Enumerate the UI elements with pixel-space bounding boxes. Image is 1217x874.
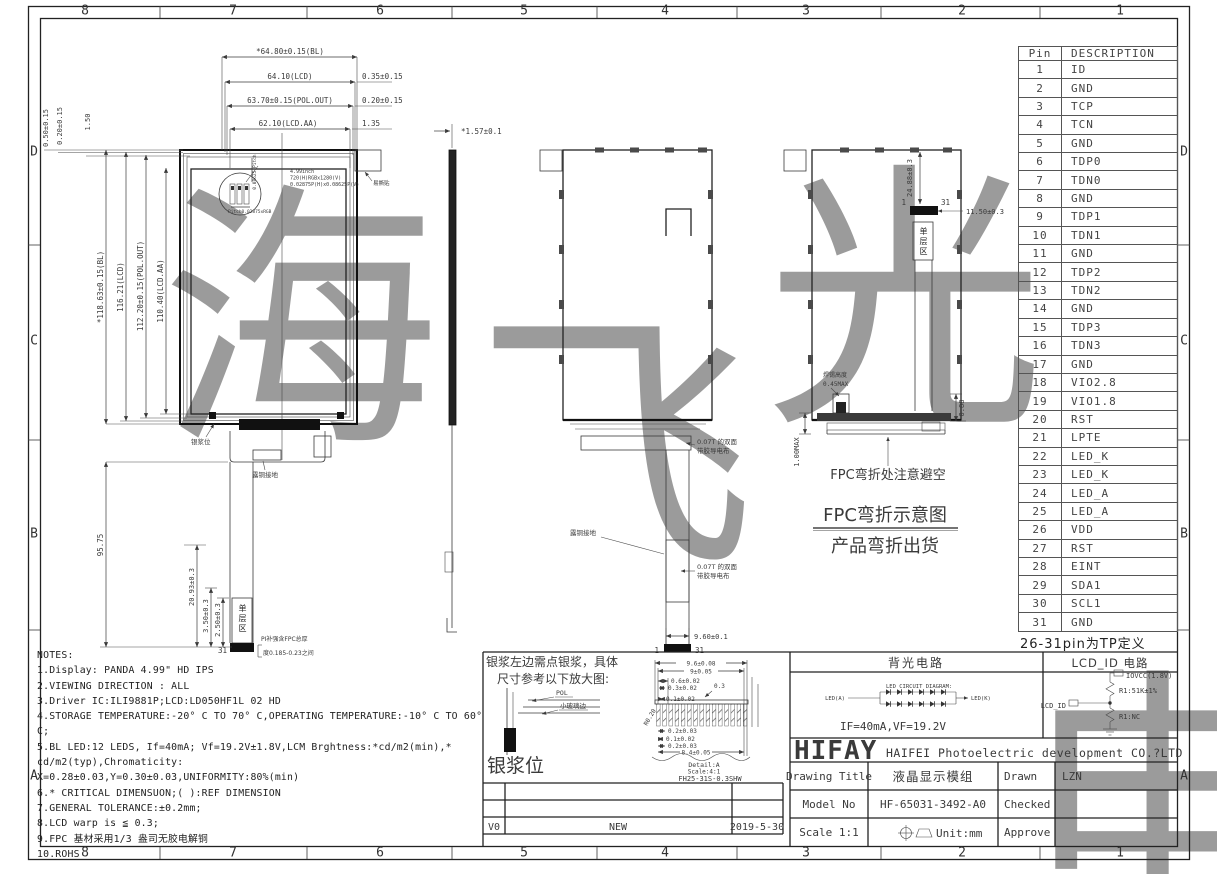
note-line: cd/m2(typ),Chromaticity: (37, 755, 489, 770)
svg-text:0.08625 Pitch: 0.08625 Pitch (252, 154, 258, 190)
note-line: 10.ROHS (37, 847, 489, 862)
pin-row: 29SDA1 (1019, 576, 1178, 594)
svg-text:FPC弯折示意图: FPC弯折示意图 (823, 505, 947, 526)
pin-table-body: 1ID2GND3TCP4TCN5GND6TDP07TDN08GND9TDP110… (1019, 61, 1178, 632)
note-line: 7.GENERAL TOLERANCE:±0.2mm; (37, 801, 489, 816)
svg-text:Unit:mm: Unit:mm (936, 827, 983, 840)
pin-table: Pin DESCRIPTION 1ID2GND3TCP4TCN5GND6TDP0… (1018, 46, 1178, 632)
svg-text:0.6±0.02: 0.6±0.02 (671, 678, 700, 685)
grid-row-label: C (30, 334, 38, 349)
svg-text:Drawn: Drawn (1004, 770, 1037, 783)
pin-row: 19VIO1.8 (1019, 392, 1178, 410)
svg-text:110.40(LCD.AA): 110.40(LCD.AA) (156, 259, 165, 322)
grid-row-label: C (1180, 334, 1188, 349)
grid-row-label: A (1180, 769, 1188, 784)
note-line: 2.VIEWING DIRECTION : ALL (37, 679, 489, 694)
pin-row: 9TDP1 (1019, 208, 1178, 226)
svg-text:FH25-31S-0.3SHW: FH25-31S-0.3SHW (678, 775, 742, 783)
projection-symbol (898, 825, 932, 841)
note-line: X=0.28±0.03,Y=0.30±0.03,UNIFORMITY:80%(m… (37, 770, 489, 785)
pin-row: 1ID (1019, 61, 1178, 79)
svg-text:LCD_ID: LCD_ID (1041, 702, 1066, 710)
svg-text:0.20±0.15: 0.20±0.15 (56, 107, 64, 145)
svg-text:1: 1 (901, 198, 906, 207)
svg-text:露铜接地: 露铜接地 (252, 470, 279, 479)
desc-col-header: DESCRIPTION (1062, 47, 1178, 61)
pin-col-header: Pin (1019, 47, 1062, 61)
grid-col-label: 3 (802, 846, 810, 861)
grid-col-label: 7 (229, 846, 237, 861)
svg-text:2019-5-30: 2019-5-30 (730, 822, 784, 833)
svg-text:8.4±0.05: 8.4±0.05 (682, 750, 711, 757)
note-line: 5.BL LED:12 LEDS, If=40mA; Vf=19.2V±1.8V… (37, 740, 489, 755)
svg-text:露铜接地: 露铜接地 (570, 528, 597, 537)
svg-text:116.21(LCD): 116.21(LCD) (116, 262, 125, 312)
svg-text:产品弯折出货: 产品弯折出货 (831, 536, 939, 557)
pin-row: 21LPTE (1019, 429, 1178, 447)
svg-text:*118.63±0.15(BL): *118.63±0.15(BL) (96, 251, 105, 323)
single-layer-label-fold: 单层区 (918, 227, 929, 257)
svg-text:0.1±0.02: 0.1±0.02 (666, 736, 695, 743)
svg-text:0.35±0.15: 0.35±0.15 (362, 72, 403, 81)
grid-row-label: B (1180, 527, 1188, 542)
pin-row: 22LED_K (1019, 447, 1178, 465)
svg-text:0.07T 的双面: 0.07T 的双面 (697, 562, 738, 571)
pin-table-header: Pin DESCRIPTION (1019, 47, 1178, 61)
svg-text:带胶导电布: 带胶导电布 (697, 446, 730, 455)
front-left-top-dims: 0.50±0.15 0.20±0.15 1.50 (42, 107, 190, 156)
pin-row: 13TDN2 (1019, 281, 1178, 299)
svg-text:0.3±0.02: 0.3±0.02 (668, 685, 697, 692)
svg-text:带胶导电布: 带胶导电布 (697, 571, 730, 580)
svg-text:Checked: Checked (1004, 798, 1050, 811)
pin-row: 12TDP2 (1019, 263, 1178, 281)
pin-row: 20RST (1019, 410, 1178, 428)
pin-row: 26VDD (1019, 521, 1178, 539)
svg-text:0.3: 0.3 (714, 683, 725, 690)
tp-definition-note: 26-31pin为TP定义 (1020, 633, 1178, 652)
grid-col-label: 6 (376, 4, 384, 19)
pin-row: 23LED_K (1019, 465, 1178, 483)
grid-row-label: D (1180, 145, 1188, 160)
svg-text:Drawing Title: Drawing Title (786, 770, 872, 783)
svg-text:V0: V0 (488, 822, 500, 833)
svg-text:银浆左边需点银浆，具体: 银浆左边需点银浆，具体 (486, 654, 618, 669)
pin-row: 7TDN0 (1019, 171, 1178, 189)
svg-text:0.45MAX: 0.45MAX (823, 381, 849, 388)
svg-text:*64.80±0.15(BL): *64.80±0.15(BL) (256, 47, 324, 56)
svg-text:液晶显示模组: 液晶显示模组 (892, 769, 973, 784)
pin-row: 14GND (1019, 300, 1178, 318)
svg-text:0.1±0.02: 0.1±0.02 (666, 696, 695, 703)
svg-text:720(H)RGBx1280(V): 720(H)RGBx1280(V) (290, 176, 341, 182)
svg-text:0.07T 的双面: 0.07T 的双面 (697, 437, 738, 446)
detail-a: 9.6±0.08 9±0.05 0.6±0.02 0.3±0.02 0.3 0.… (643, 660, 758, 783)
svg-text:31: 31 (941, 198, 950, 207)
svg-text:IF=40mA,VF=19.2V: IF=40mA,VF=19.2V (840, 720, 946, 733)
svg-text:FPC弯折处注意避空: FPC弯折处注意避空 (830, 467, 945, 483)
grid-col-label: 3 (802, 4, 810, 19)
svg-text:R0.20: R0.20 (643, 708, 658, 727)
front-lower-dims: 95.75 20.93±0.3 3.50±0.3 2.50±0.3 (96, 462, 232, 647)
grid-col-label: 8 (81, 4, 89, 19)
pin-row: 3TCP (1019, 97, 1178, 115)
svg-text:11.50±0.3: 11.50±0.3 (966, 208, 1004, 216)
grid-row-label: D (30, 145, 38, 160)
svg-text:20.93±0.3: 20.93±0.3 (188, 568, 196, 606)
note-line: 9.FPC 基材采用1/3 盎司无胶电解铜 (37, 832, 489, 847)
svg-text:0.2±0.03: 0.2±0.03 (668, 728, 697, 735)
svg-text:银浆位: 银浆位 (191, 437, 211, 446)
svg-text:LZN: LZN (1062, 770, 1082, 783)
svg-text:LCD_ID 电路: LCD_ID 电路 (1072, 656, 1149, 670)
grid-col-label: 6 (376, 846, 384, 861)
svg-text:24.88±0.3: 24.88±0.3 (906, 159, 914, 197)
pin-row: 28EINT (1019, 557, 1178, 575)
svg-text:尺寸参考以下放大图:: 尺寸参考以下放大图: (497, 671, 609, 686)
svg-text:背光电路: 背光电路 (888, 655, 944, 670)
svg-text:Pitch0.02875xRGB: Pitch0.02875xRGB (228, 209, 272, 215)
grid-col-label: 8 (81, 846, 89, 861)
grid-col-label: 4 (661, 846, 669, 861)
pin-row: 10TDN1 (1019, 226, 1178, 244)
svg-text:R1:51K±1%: R1:51K±1% (1119, 687, 1158, 695)
svg-text:31: 31 (695, 646, 704, 655)
note-line: 6.* CRITICAL DIMENSUON;( ):REF DIMENSION (37, 786, 489, 801)
pin-row: 2GND (1019, 79, 1178, 97)
pin-row: 16TDN3 (1019, 337, 1178, 355)
pin-row: 25LED_A (1019, 502, 1178, 520)
svg-text:0.20±0.15: 0.20±0.15 (362, 96, 403, 105)
svg-text:112.20±0.15(POL.OUT): 112.20±0.15(POL.OUT) (136, 241, 145, 331)
svg-text:0.02875P(H)x0.08625P(V): 0.02875P(H)x0.08625P(V) (290, 182, 359, 188)
pin-row: 18VIO2.8 (1019, 373, 1178, 391)
svg-text:Scale 1:1: Scale 1:1 (799, 826, 859, 839)
svg-text:0.88: 0.88 (958, 400, 966, 417)
svg-text:Approve: Approve (1004, 826, 1050, 839)
svg-text:R1:NC: R1:NC (1119, 713, 1140, 721)
svg-text:1.00MAX: 1.00MAX (793, 436, 801, 466)
backlight-circuit: 背光电路 LED CIRCUIT DIAGRAM: LED(A) LED(K) … (825, 655, 991, 733)
svg-text:*1.57±0.1: *1.57±0.1 (461, 127, 502, 136)
svg-text:1: 1 (654, 646, 659, 655)
grid-col-label: 2 (958, 4, 966, 19)
svg-text:焊锡高度: 焊锡高度 (823, 371, 847, 379)
notes-lines: 1.Display: PANDA 4.99" HD IPS2.VIEWING D… (37, 663, 489, 862)
pin-row: 31GND (1019, 613, 1178, 632)
svg-text:0.50±0.15: 0.50±0.15 (42, 109, 50, 147)
pin-row: 4TCN (1019, 116, 1178, 134)
pin-row: 11GND (1019, 245, 1178, 263)
svg-text:小玻璃边: 小玻璃边 (560, 701, 587, 710)
svg-text:1.35: 1.35 (362, 119, 380, 128)
grid-col-label: 5 (520, 4, 528, 19)
svg-text:9.60±0.1: 9.60±0.1 (694, 633, 728, 641)
grid-row-label: B (30, 527, 38, 542)
svg-text:Model No: Model No (803, 798, 856, 811)
svg-text:9±0.05: 9±0.05 (690, 669, 712, 676)
pin-row: 27RST (1019, 539, 1178, 557)
drawing-sheet: 海 飞 光 电 (0, 0, 1217, 874)
grid-col-label: 1 (1116, 4, 1124, 19)
svg-text:银浆位: 银浆位 (487, 755, 544, 777)
note-line: 3.Driver IC:ILI9881P;LCD:LD050HF1L 02 HD (37, 694, 489, 709)
svg-text:1.50: 1.50 (84, 114, 92, 131)
svg-text:62.10(LCD.AA): 62.10(LCD.AA) (259, 119, 318, 128)
note-line: 4.STORAGE TEMPERATURE:-20° C TO 70° C,OP… (37, 709, 489, 740)
grid-col-label: 2 (958, 846, 966, 861)
notes-block: NOTES: 1.Display: PANDA 4.99" HD IPS2.VI… (37, 648, 489, 862)
note-line: 1.Display: PANDA 4.99" HD IPS (37, 663, 489, 678)
svg-text:LED(A): LED(A) (825, 696, 845, 702)
single-layer-label-front: 单层区 (237, 604, 248, 634)
silver-paste-detail: 银浆左边需点银浆，具体 尺寸参考以下放大图: POL 小玻璃边 银浆位 (486, 654, 618, 777)
notes-title: NOTES: (37, 648, 489, 663)
company-logo: HIFAY (794, 736, 877, 766)
svg-text:64.10(LCD): 64.10(LCD) (267, 72, 312, 81)
pin-row: 5GND (1019, 134, 1178, 152)
svg-text:95.75: 95.75 (96, 534, 105, 557)
svg-text:易撕贴: 易撕贴 (373, 179, 390, 187)
pin-row: 24LED_A (1019, 484, 1178, 502)
svg-text:HF-65031-3492-A0: HF-65031-3492-A0 (880, 798, 986, 811)
svg-text:LED(K): LED(K) (971, 696, 991, 702)
grid-col-label: 5 (520, 846, 528, 861)
svg-text:POL: POL (556, 689, 568, 697)
svg-text:PI补强含FPC总厚: PI补强含FPC总厚 (261, 635, 308, 643)
svg-text:IOVCC(1.8V): IOVCC(1.8V) (1126, 672, 1172, 680)
note-line: 8.LCD warp is ≦ 0.3; (37, 816, 489, 831)
grid-col-label: 4 (661, 4, 669, 19)
svg-text:63.70±0.15(POL.OUT): 63.70±0.15(POL.OUT) (247, 96, 333, 105)
grid-row-label: A (30, 769, 38, 784)
grid-col-label: 7 (229, 4, 237, 19)
pin-row: 30SCL1 (1019, 594, 1178, 612)
svg-text:4.99inch: 4.99inch (290, 169, 314, 175)
pin-row: 6TDP0 (1019, 153, 1178, 171)
svg-text:2.50±0.3: 2.50±0.3 (214, 603, 222, 637)
svg-text:NEW: NEW (609, 822, 628, 833)
company-name: HAIFEI Photoelectric development CO.?LTD (886, 746, 1183, 760)
svg-text:9.6±0.08: 9.6±0.08 (687, 661, 716, 668)
grid-col-label: 1 (1116, 846, 1124, 861)
svg-text:3.50±0.3: 3.50±0.3 (202, 599, 210, 633)
pin-row: 15TDP3 (1019, 318, 1178, 336)
svg-text:电: 电 (1020, 646, 1217, 874)
pin-row: 8GND (1019, 189, 1178, 207)
revision-table: V0 NEW 2019-5-30 (483, 783, 784, 834)
pin-row: 17GND (1019, 355, 1178, 373)
svg-text:LED CIRCUIT DIAGRAM:: LED CIRCUIT DIAGRAM: (886, 684, 952, 690)
